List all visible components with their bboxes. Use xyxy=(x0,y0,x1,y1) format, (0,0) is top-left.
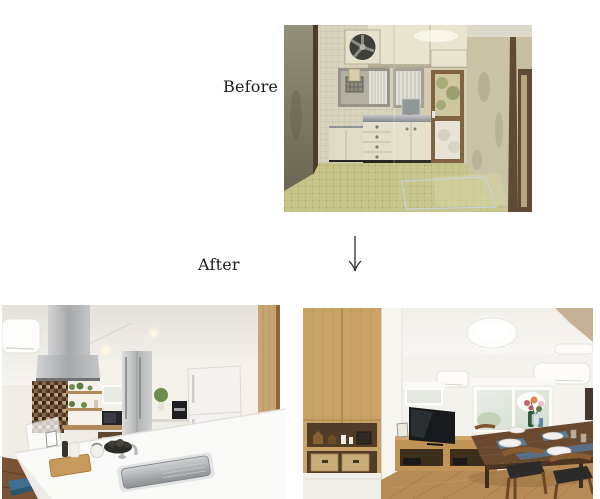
living-dining-scene xyxy=(303,308,593,499)
down-arrow-icon xyxy=(347,234,363,276)
steel-pantry-cabinet xyxy=(122,351,152,439)
kitchen-window xyxy=(102,385,124,404)
television xyxy=(409,407,455,445)
photo-stitch-seam xyxy=(394,25,532,212)
plate xyxy=(509,427,525,433)
before-label: Before xyxy=(223,77,278,96)
display-case xyxy=(585,388,593,420)
air-conditioner xyxy=(2,319,40,353)
small-window xyxy=(403,382,445,405)
decor-frame xyxy=(397,423,408,437)
plate xyxy=(499,439,521,447)
before-after-arrow xyxy=(347,234,363,276)
kettle xyxy=(91,445,104,458)
after-photo-living-dining xyxy=(303,308,593,499)
old-kitchen-scene xyxy=(284,25,532,212)
ventilation-fan xyxy=(345,30,380,64)
pepper-mill xyxy=(62,441,68,457)
after-photo-kitchen xyxy=(2,305,285,499)
after-label: After xyxy=(198,255,240,274)
photo-stand xyxy=(46,431,57,447)
kitchen-window-left xyxy=(338,68,390,107)
oak-cabinet xyxy=(303,308,381,499)
intercom-box xyxy=(349,69,360,81)
left-wall xyxy=(284,25,318,191)
plate xyxy=(543,432,563,439)
downlight xyxy=(103,347,110,354)
new-kitchen-scene xyxy=(2,305,285,499)
before-photo-old-kitchen xyxy=(284,25,532,212)
downlight xyxy=(151,330,157,336)
